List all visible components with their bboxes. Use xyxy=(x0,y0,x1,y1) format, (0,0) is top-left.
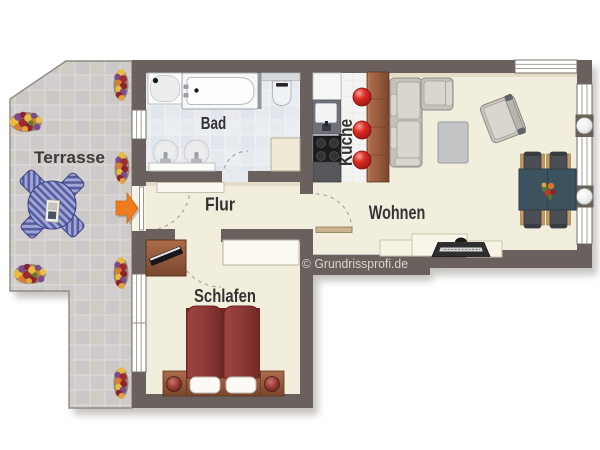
svg-text:Küche: Küche xyxy=(336,119,356,166)
svg-text:Flur: Flur xyxy=(205,195,235,215)
svg-text:Terrasse: Terrasse xyxy=(34,148,105,167)
svg-text:Wohnen: Wohnen xyxy=(369,203,426,224)
svg-text:© Grundrissprofi.de: © Grundrissprofi.de xyxy=(302,257,408,271)
svg-text:Bad: Bad xyxy=(201,113,227,133)
svg-text:Schlafen: Schlafen xyxy=(194,286,256,306)
